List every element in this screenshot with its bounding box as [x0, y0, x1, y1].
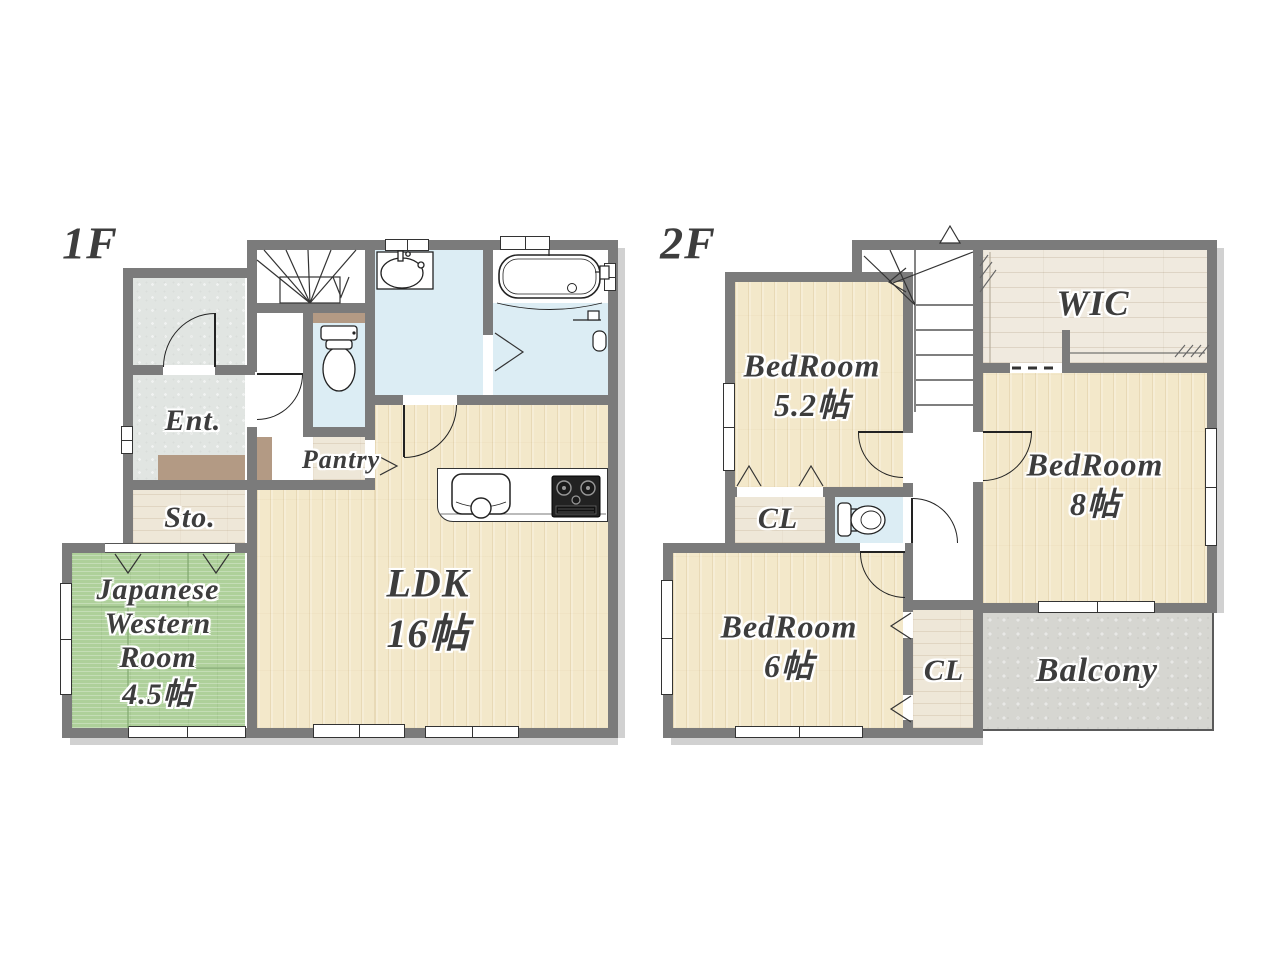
ldk-floor-left	[257, 490, 375, 728]
window	[121, 426, 133, 454]
window	[604, 263, 616, 291]
wall-segment	[303, 303, 313, 437]
wall-shadow	[70, 738, 618, 745]
window	[425, 726, 519, 738]
wall-segment	[973, 603, 1038, 613]
hall-cabinet	[257, 437, 272, 480]
window	[661, 580, 673, 695]
wall-segment	[903, 272, 913, 433]
room-label-bedroom52-line1: BedRoom	[744, 348, 881, 385]
wall-segment	[903, 483, 913, 497]
toilet-2f-floor	[835, 497, 903, 543]
wall-segment	[725, 487, 737, 497]
wall-shadow	[1217, 248, 1224, 613]
room-label-bedroom6-line1: BedRoom	[721, 609, 858, 646]
wall-segment	[247, 480, 375, 490]
wall-segment	[608, 240, 618, 738]
room-label-jwr-line1: Japanese	[97, 573, 220, 607]
room-label-bedroom52-line2: 5.2帖	[774, 380, 850, 426]
wall-segment	[457, 395, 608, 405]
wall-segment	[123, 480, 255, 490]
wall-segment	[1155, 603, 1217, 613]
room-label-bedroom8-line1: BedRoom	[1027, 447, 1164, 484]
kitchen-counter	[437, 468, 608, 522]
wall-segment	[1207, 240, 1217, 613]
wall-segment	[247, 427, 257, 480]
wall-segment	[1062, 363, 1217, 373]
wall-segment	[725, 272, 913, 282]
floor-plan-canvas: 1F 2F Ent. Sto. Japanese Western Room 4.…	[0, 0, 1280, 960]
wall-segment	[365, 405, 375, 440]
window	[723, 383, 735, 471]
balcony-rail	[983, 729, 1214, 731]
wall-segment	[825, 497, 835, 543]
wall-segment	[123, 268, 255, 278]
bathtub-zone	[493, 250, 608, 303]
room-label-ldk-line2: 16帖	[387, 601, 470, 659]
wall-segment	[247, 240, 618, 250]
door-arc-toilet2f	[913, 498, 958, 543]
room-label-entrance: Ent.	[165, 404, 222, 438]
wall-segment	[365, 478, 375, 490]
window	[385, 239, 429, 251]
window	[60, 583, 72, 695]
floor-label-2f: 2F	[660, 217, 716, 270]
wall-segment	[1062, 330, 1070, 370]
wall-segment	[973, 363, 1010, 373]
wall-segment	[123, 365, 163, 375]
wall-segment	[247, 480, 257, 728]
room-label-bedroom8-line2: 8帖	[1070, 479, 1120, 525]
room-label-ldk-line1: LDK	[387, 560, 470, 607]
wall-segment	[365, 240, 375, 405]
room-label-pantry: Pantry	[302, 445, 380, 475]
window	[128, 726, 246, 738]
wall-segment	[973, 613, 983, 738]
closet-opening	[105, 543, 235, 553]
room-label-balcony: Balcony	[1036, 652, 1158, 690]
window	[313, 724, 405, 738]
wall-segment	[903, 720, 913, 728]
window	[1038, 601, 1155, 613]
stairs-1f	[257, 250, 356, 303]
room-label-jwr-line2: Western	[105, 607, 211, 641]
wall-segment	[973, 242, 983, 432]
toilet-1f-shelf	[313, 313, 365, 323]
wall-shadow	[671, 738, 983, 745]
window	[1205, 428, 1217, 546]
room-label-closet-a: CL	[758, 502, 798, 536]
wall-segment	[663, 543, 860, 553]
room-label-wic: WIC	[1056, 282, 1129, 324]
wall-segment	[823, 487, 913, 497]
balcony-rail	[1212, 613, 1214, 731]
room-label-bedroom6-line2: 6帖	[764, 641, 814, 687]
window	[500, 236, 550, 250]
floor-label-1f: 1F	[62, 217, 118, 270]
room-label-storage: Sto.	[164, 501, 216, 535]
window	[735, 726, 863, 738]
wall-segment	[973, 482, 983, 613]
wall-segment	[903, 638, 913, 695]
wall-segment	[62, 543, 105, 553]
wall-segment	[483, 240, 493, 335]
room-label-closet-b: CL	[924, 654, 964, 688]
toilet-1f-floor	[313, 313, 365, 427]
wall-segment	[365, 395, 403, 405]
room-label-jwr-line4: 4.5帖	[122, 669, 194, 713]
washroom-floor	[375, 250, 483, 395]
entrance-step	[158, 455, 245, 480]
wall-segment	[852, 240, 1217, 250]
wall-shadow	[618, 248, 625, 738]
door-arc-hall	[257, 374, 303, 420]
wall-segment	[123, 268, 133, 550]
